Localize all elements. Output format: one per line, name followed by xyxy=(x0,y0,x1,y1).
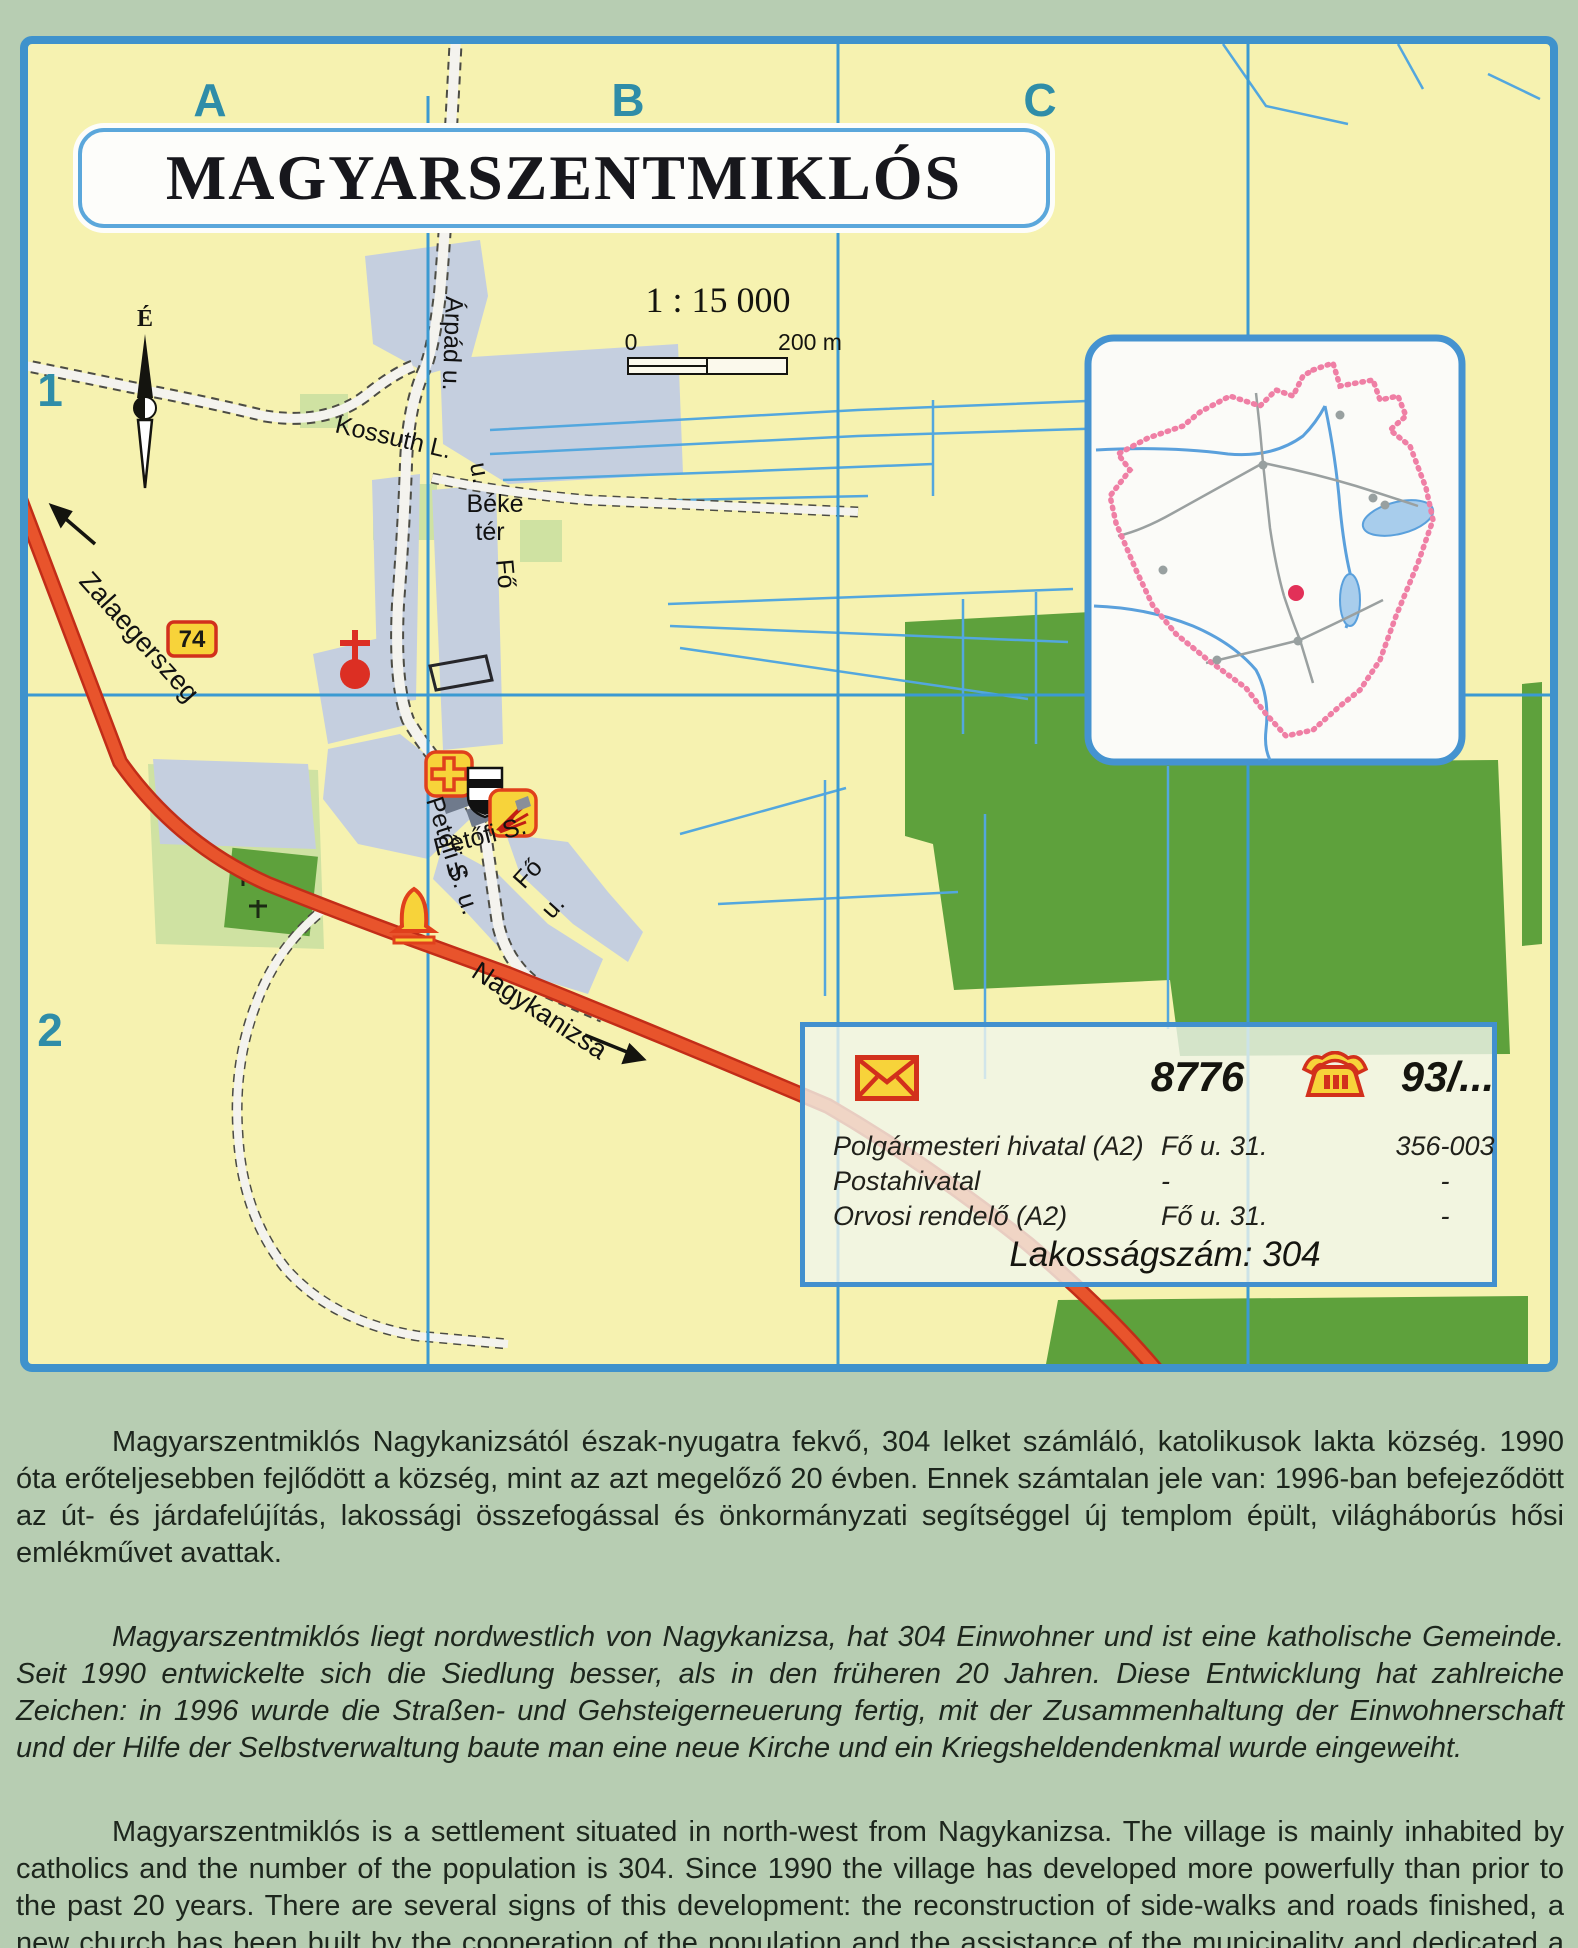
description-english: Magyarszentmiklós is a settlement situat… xyxy=(16,1814,1564,1948)
scanned-map-page: 74 xyxy=(0,0,1578,1948)
poi-name: Polgármesteri hivatal (A2) xyxy=(833,1131,1144,1162)
grid-col-a: A xyxy=(193,74,226,126)
scale-zero-label: 0 xyxy=(625,329,638,355)
grid-row-2: 2 xyxy=(37,1004,63,1056)
map-title: MAGYARSZENTMIKLÓS xyxy=(166,141,962,215)
scale-end-label: 200 m xyxy=(778,329,842,355)
poi-name: Orvosi rendelő (A2) xyxy=(833,1201,1067,1232)
description-hungarian: Magyarszentmiklós Nagykanizsától észak-n… xyxy=(16,1424,1564,1572)
info-box: 8776 93/... Polgármesteri hivatal (A2) F… xyxy=(800,1022,1497,1287)
inset-map xyxy=(1088,338,1462,762)
first-aid-symbol xyxy=(426,752,472,796)
scale-indicator: 1 : 15 000 0 200 m xyxy=(625,280,842,374)
poi-phone: - xyxy=(1365,1166,1525,1197)
postal-envelope-icon xyxy=(855,1055,919,1101)
population-count: Lakosságszám: 304 xyxy=(875,1235,1455,1275)
poi-phone: 356-003 xyxy=(1365,1131,1525,1162)
scale-ratio: 1 : 15 000 xyxy=(645,280,790,320)
phone-prefix: 93/... xyxy=(1375,1053,1520,1101)
street-u-north: u. xyxy=(464,460,495,485)
route-74-badge: 74 xyxy=(168,622,216,656)
poi-address: - xyxy=(1161,1166,1170,1197)
north-letter: É xyxy=(137,306,153,332)
map-canvas: 74 xyxy=(20,36,1558,1372)
compass-north: É xyxy=(134,306,156,488)
street-arpad: Árpád u. xyxy=(437,296,469,391)
description-german: Magyarszentmiklós liegt nordwestlich von… xyxy=(16,1619,1564,1767)
map-title-box: MAGYARSZENTMIKLÓS xyxy=(78,128,1050,228)
description-block: Magyarszentmiklós Nagykanizsától észak-n… xyxy=(16,1424,1564,1948)
poi-address: Fő u. 31. xyxy=(1161,1201,1268,1232)
grid-col-b: B xyxy=(611,74,644,126)
street-kossuth: Kossuth L. xyxy=(333,411,454,465)
grid-row-1: 1 xyxy=(37,364,63,416)
route-74-label: 74 xyxy=(179,626,206,653)
inset-village-dot xyxy=(1288,585,1304,601)
poi-name: Postahivatal xyxy=(833,1166,980,1197)
poi-phone: - xyxy=(1365,1201,1525,1232)
street-beke-2: tér xyxy=(475,518,504,546)
grid-col-c: C xyxy=(1023,74,1056,126)
street-beke-1: Béke xyxy=(467,490,524,518)
inset-lake-small xyxy=(1340,574,1360,626)
telephone-icon xyxy=(1300,1051,1370,1099)
street-fo-north: Fő xyxy=(490,558,520,590)
poi-address: Fő u. 31. xyxy=(1161,1131,1268,1162)
postal-code: 8776 xyxy=(1125,1053,1270,1101)
